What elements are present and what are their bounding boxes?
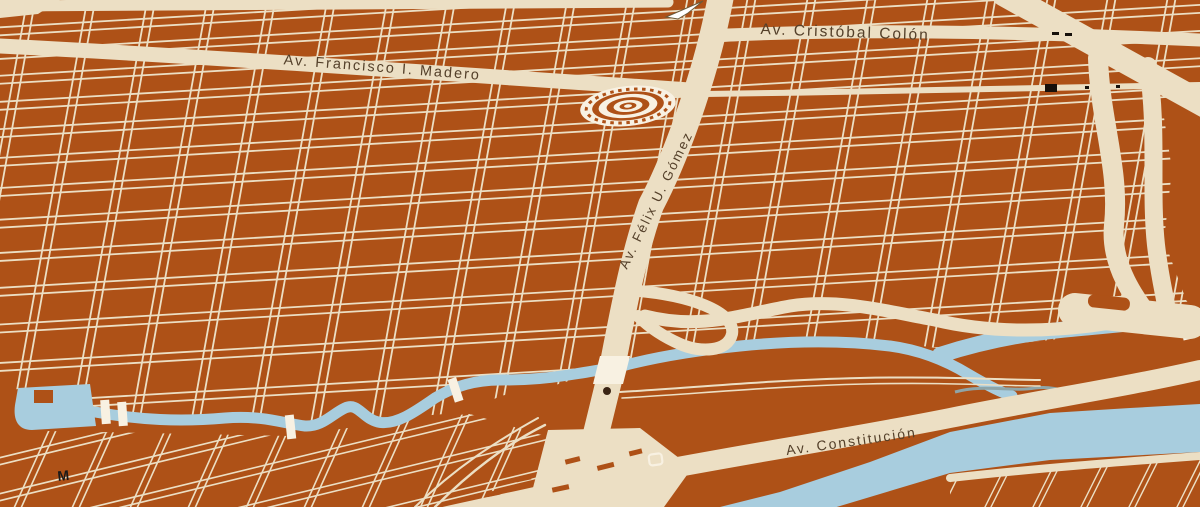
station-block-icon [1045,84,1057,92]
map-viewport[interactable]: M Av. Cristóbal Colón Av. Francisco I. M… [0,0,1200,507]
road-top-edge [0,2,668,6]
rail-dash-icon [1065,33,1072,36]
pond [15,384,96,430]
small-dot-icon [1085,86,1089,89]
city-map[interactable]: M Av. Cristóbal Colón Av. Francisco I. M… [0,0,1200,507]
small-dot-icon [1116,85,1120,88]
metro-marker[interactable]: M [57,467,70,484]
monument-dot-icon [603,387,611,395]
rail-dash-icon [1052,32,1059,35]
pond-island [34,390,53,403]
